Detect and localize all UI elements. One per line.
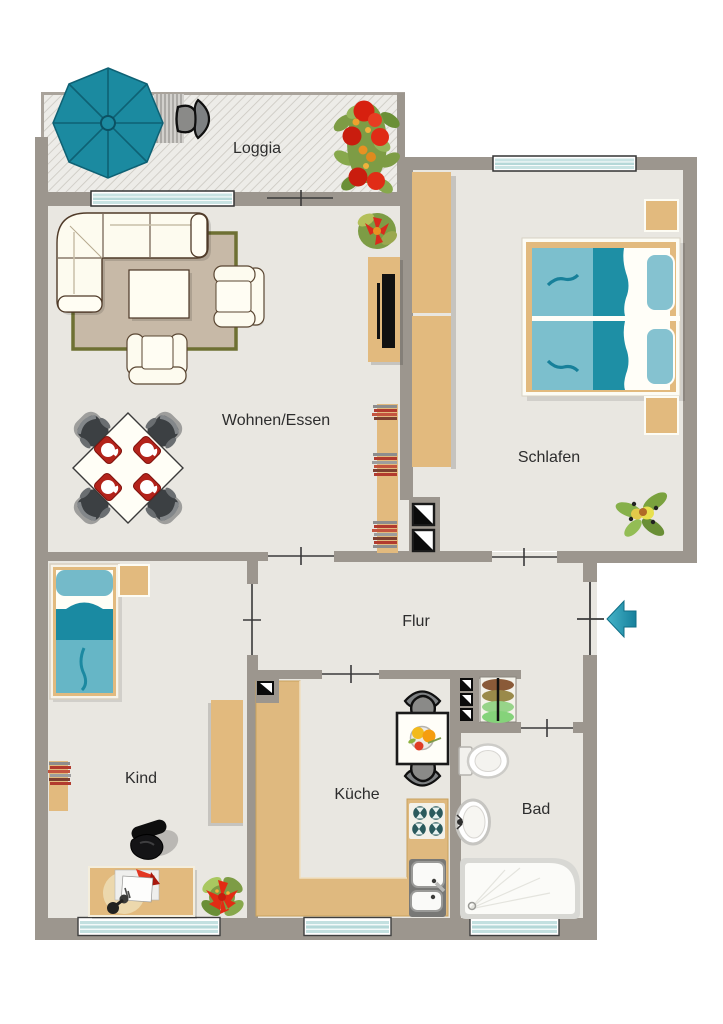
svg-text:Flur: Flur: [402, 613, 430, 630]
svg-text:Loggia: Loggia: [233, 140, 281, 157]
svg-text:Küche: Küche: [334, 786, 379, 803]
svg-text:Kind: Kind: [125, 770, 157, 787]
svg-text:Wohnen/Essen: Wohnen/Essen: [222, 412, 330, 429]
svg-text:Bad: Bad: [522, 801, 550, 818]
svg-text:Schlafen: Schlafen: [518, 449, 580, 466]
